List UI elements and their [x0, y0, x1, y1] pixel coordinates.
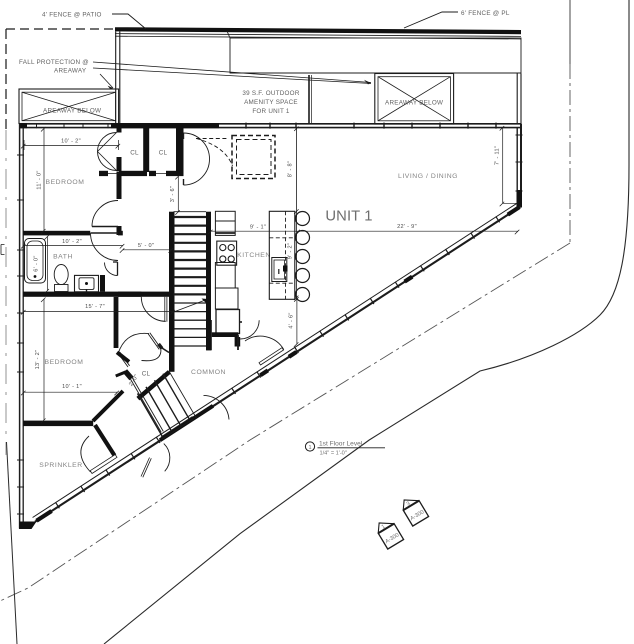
svg-text:39 S.F. OUTDOOR: 39 S.F. OUTDOOR: [242, 90, 299, 97]
svg-text:15' - 7": 15' - 7": [85, 304, 105, 310]
svg-text:BEDROOM: BEDROOM: [45, 359, 84, 366]
svg-text:10' - 2": 10' - 2": [62, 239, 82, 245]
svg-text:CL: CL: [130, 150, 139, 157]
svg-text:4' FENCE @ PATIO: 4' FENCE @ PATIO: [42, 12, 102, 19]
svg-text:22' - 9": 22' - 9": [397, 224, 417, 230]
svg-text:KITCHEN: KITCHEN: [237, 252, 271, 259]
svg-text:AMENITY SPACE: AMENITY SPACE: [244, 99, 298, 106]
svg-text:1: 1: [308, 445, 311, 451]
svg-text:5' - 0": 5' - 0": [138, 243, 154, 249]
svg-text:9' - 1": 9' - 1": [250, 224, 266, 230]
svg-text:FALL PROTECTION @: FALL PROTECTION @: [19, 59, 89, 66]
svg-text:3' - 6": 3' - 6": [170, 186, 176, 202]
svg-text:8' - 8": 8' - 8": [288, 161, 294, 177]
svg-text:COMMON: COMMON: [191, 369, 226, 376]
svg-text:1st Floor Level: 1st Floor Level: [319, 441, 363, 448]
svg-text:AREAWAY BELOW: AREAWAY BELOW: [43, 108, 101, 115]
svg-text:7' - 11": 7' - 11": [495, 146, 501, 165]
svg-text:4' - 6": 4' - 6": [288, 312, 294, 328]
svg-text:BEDROOM: BEDROOM: [46, 179, 85, 186]
svg-text:SPRINKLER: SPRINKLER: [39, 462, 82, 469]
svg-text:FOR UNIT 1: FOR UNIT 1: [252, 108, 290, 115]
svg-text:BATH: BATH: [53, 254, 73, 261]
svg-text:CL: CL: [159, 150, 168, 157]
svg-text:10' - 2": 10' - 2": [61, 139, 81, 145]
svg-text:10' - 1": 10' - 1": [62, 384, 82, 390]
svg-text:LIVING / DINING: LIVING / DINING: [398, 173, 458, 180]
svg-text:11' - 0": 11' - 0": [37, 170, 43, 189]
svg-text:6' FENCE @ PL: 6' FENCE @ PL: [461, 10, 510, 17]
svg-text:AREAWAY BELOW: AREAWAY BELOW: [385, 100, 443, 107]
svg-text:13' - 2": 13' - 2": [35, 350, 41, 370]
svg-text:CL: CL: [142, 371, 151, 378]
svg-text:6' - 0": 6' - 0": [34, 255, 40, 271]
svg-text:AREAWAY: AREAWAY: [54, 68, 87, 75]
svg-text:1/4" = 1'-0": 1/4" = 1'-0": [320, 451, 347, 457]
svg-text:9' - 2": 9' - 2": [288, 243, 294, 259]
svg-text:UNIT 1: UNIT 1: [325, 209, 372, 225]
